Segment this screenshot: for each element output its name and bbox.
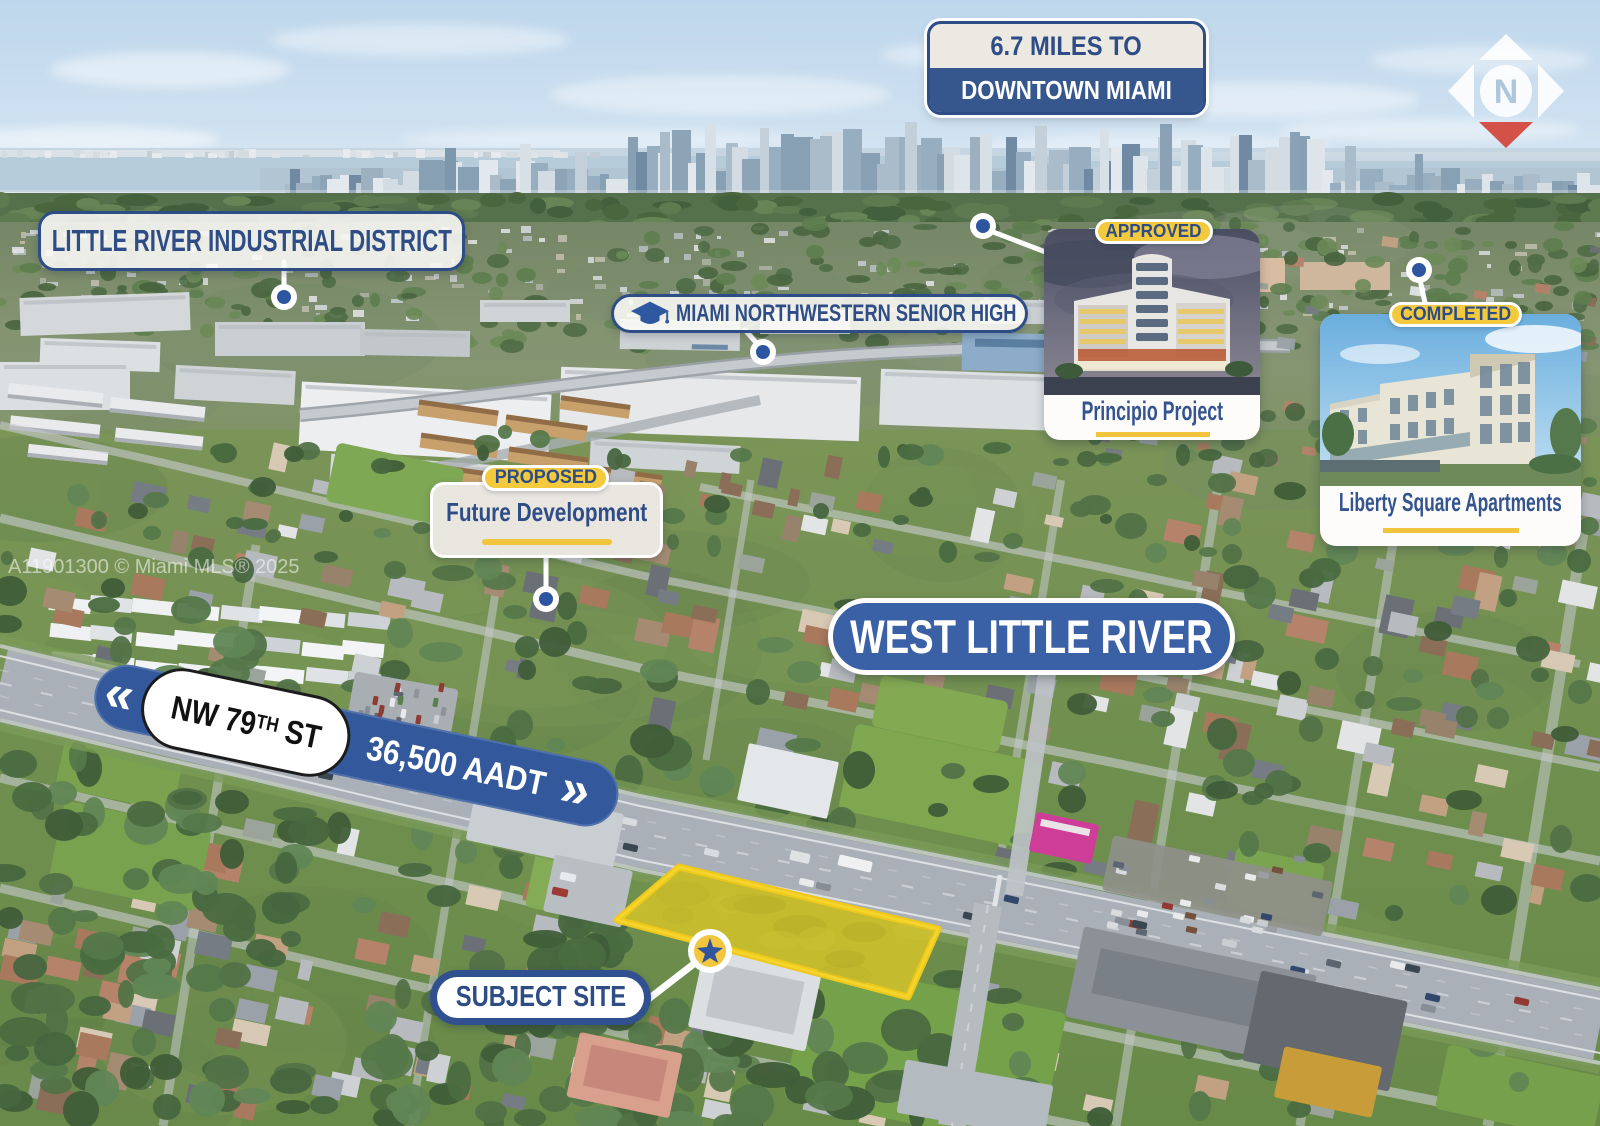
svg-text:N: N	[1494, 73, 1519, 111]
svg-text:A11901300 © Miami MLS® 2025: A11901300 © Miami MLS® 2025	[8, 556, 299, 578]
